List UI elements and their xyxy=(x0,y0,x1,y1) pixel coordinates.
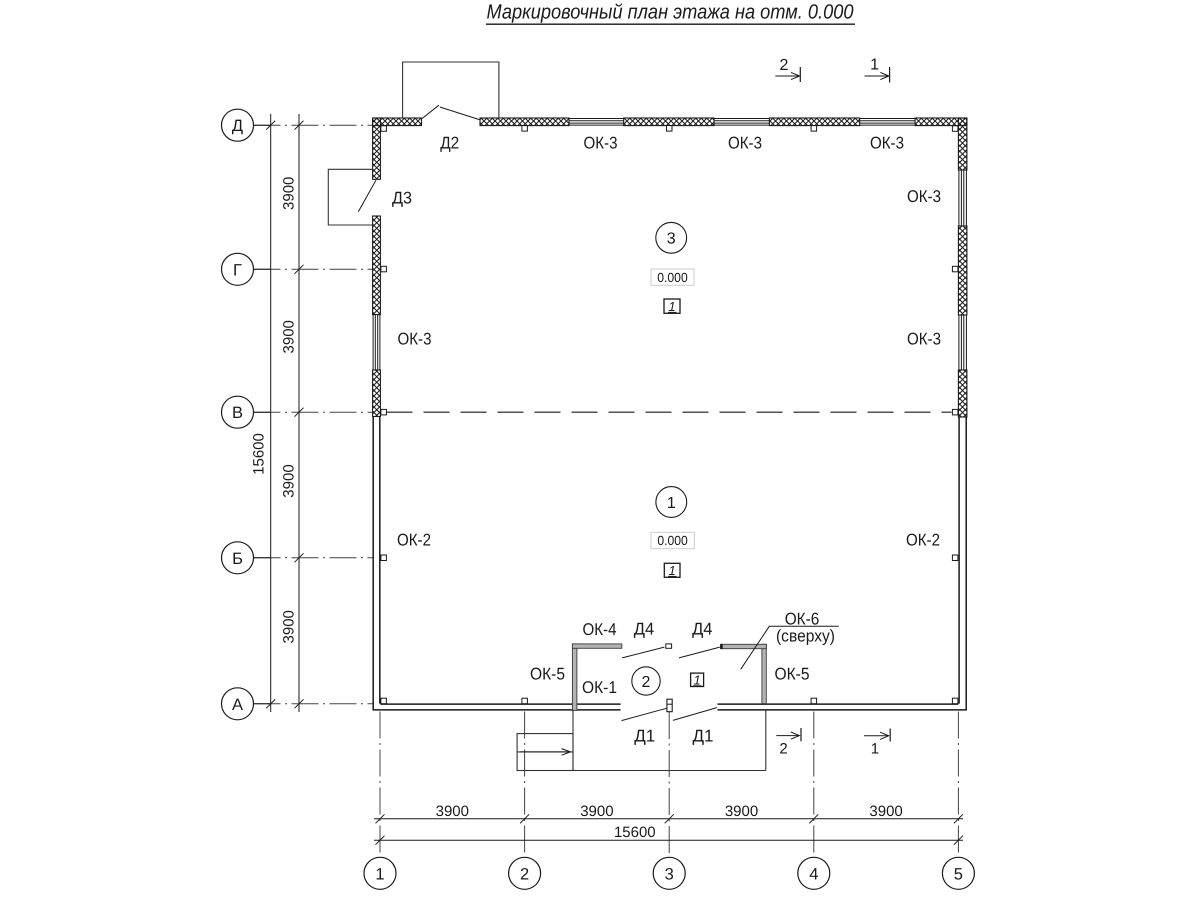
svg-text:2: 2 xyxy=(779,57,788,74)
svg-text:1: 1 xyxy=(668,563,675,578)
svg-text:Г: Г xyxy=(233,261,242,279)
svg-text:2: 2 xyxy=(520,865,529,883)
svg-text:ОК-2: ОК-2 xyxy=(397,531,431,550)
svg-text:3900: 3900 xyxy=(281,464,298,497)
svg-text:3900: 3900 xyxy=(436,803,469,820)
svg-text:3: 3 xyxy=(667,231,676,248)
svg-text:15600: 15600 xyxy=(251,433,268,475)
svg-text:Д2: Д2 xyxy=(440,134,459,153)
svg-text:Маркировочный план этажа на от: Маркировочный план этажа на отм. 0.000 xyxy=(487,1,855,24)
svg-text:1: 1 xyxy=(667,495,676,512)
svg-text:ОК-3: ОК-3 xyxy=(870,134,904,153)
svg-text:0.000: 0.000 xyxy=(657,533,688,548)
svg-text:ОК-3: ОК-3 xyxy=(907,187,941,206)
svg-text:ОК-3: ОК-3 xyxy=(584,134,618,153)
svg-text:3900: 3900 xyxy=(869,803,902,820)
svg-text:3900: 3900 xyxy=(580,803,613,820)
svg-text:3900: 3900 xyxy=(725,803,758,820)
svg-text:1: 1 xyxy=(668,299,675,314)
svg-text:ОК-1: ОК-1 xyxy=(582,678,617,697)
svg-text:В: В xyxy=(232,404,243,422)
svg-text:3900: 3900 xyxy=(281,177,298,210)
svg-text:Д1: Д1 xyxy=(693,727,714,746)
svg-text:1: 1 xyxy=(693,672,700,687)
svg-text:Д4: Д4 xyxy=(692,619,712,638)
svg-text:3: 3 xyxy=(665,865,674,883)
svg-text:А: А xyxy=(232,696,243,714)
svg-text:ОК-2: ОК-2 xyxy=(906,531,940,550)
svg-text:ОК-5: ОК-5 xyxy=(775,665,810,684)
svg-text:5: 5 xyxy=(954,865,963,883)
svg-text:ОК-3: ОК-3 xyxy=(907,330,941,349)
svg-text:Д3: Д3 xyxy=(392,188,412,207)
svg-text:3900: 3900 xyxy=(281,610,298,643)
svg-text:Д4: Д4 xyxy=(634,620,654,639)
svg-text:3900: 3900 xyxy=(281,320,298,353)
svg-text:Д: Д xyxy=(232,117,243,135)
svg-text:2: 2 xyxy=(779,741,787,758)
svg-text:ОК-5: ОК-5 xyxy=(530,665,565,684)
svg-text:2: 2 xyxy=(642,674,651,691)
svg-text:15600: 15600 xyxy=(614,824,656,841)
svg-text:0.000: 0.000 xyxy=(657,270,688,285)
svg-text:4: 4 xyxy=(809,865,818,883)
svg-text:ОК-3: ОК-3 xyxy=(398,330,432,349)
svg-text:(сверху): (сверху) xyxy=(776,626,835,645)
svg-text:Б: Б xyxy=(232,550,243,568)
svg-text:1: 1 xyxy=(870,57,879,74)
svg-text:ОК-4: ОК-4 xyxy=(583,620,617,639)
svg-text:Д1: Д1 xyxy=(634,727,655,746)
svg-text:ОК-3: ОК-3 xyxy=(728,134,762,153)
svg-text:1: 1 xyxy=(375,865,384,883)
svg-text:1: 1 xyxy=(871,741,879,758)
